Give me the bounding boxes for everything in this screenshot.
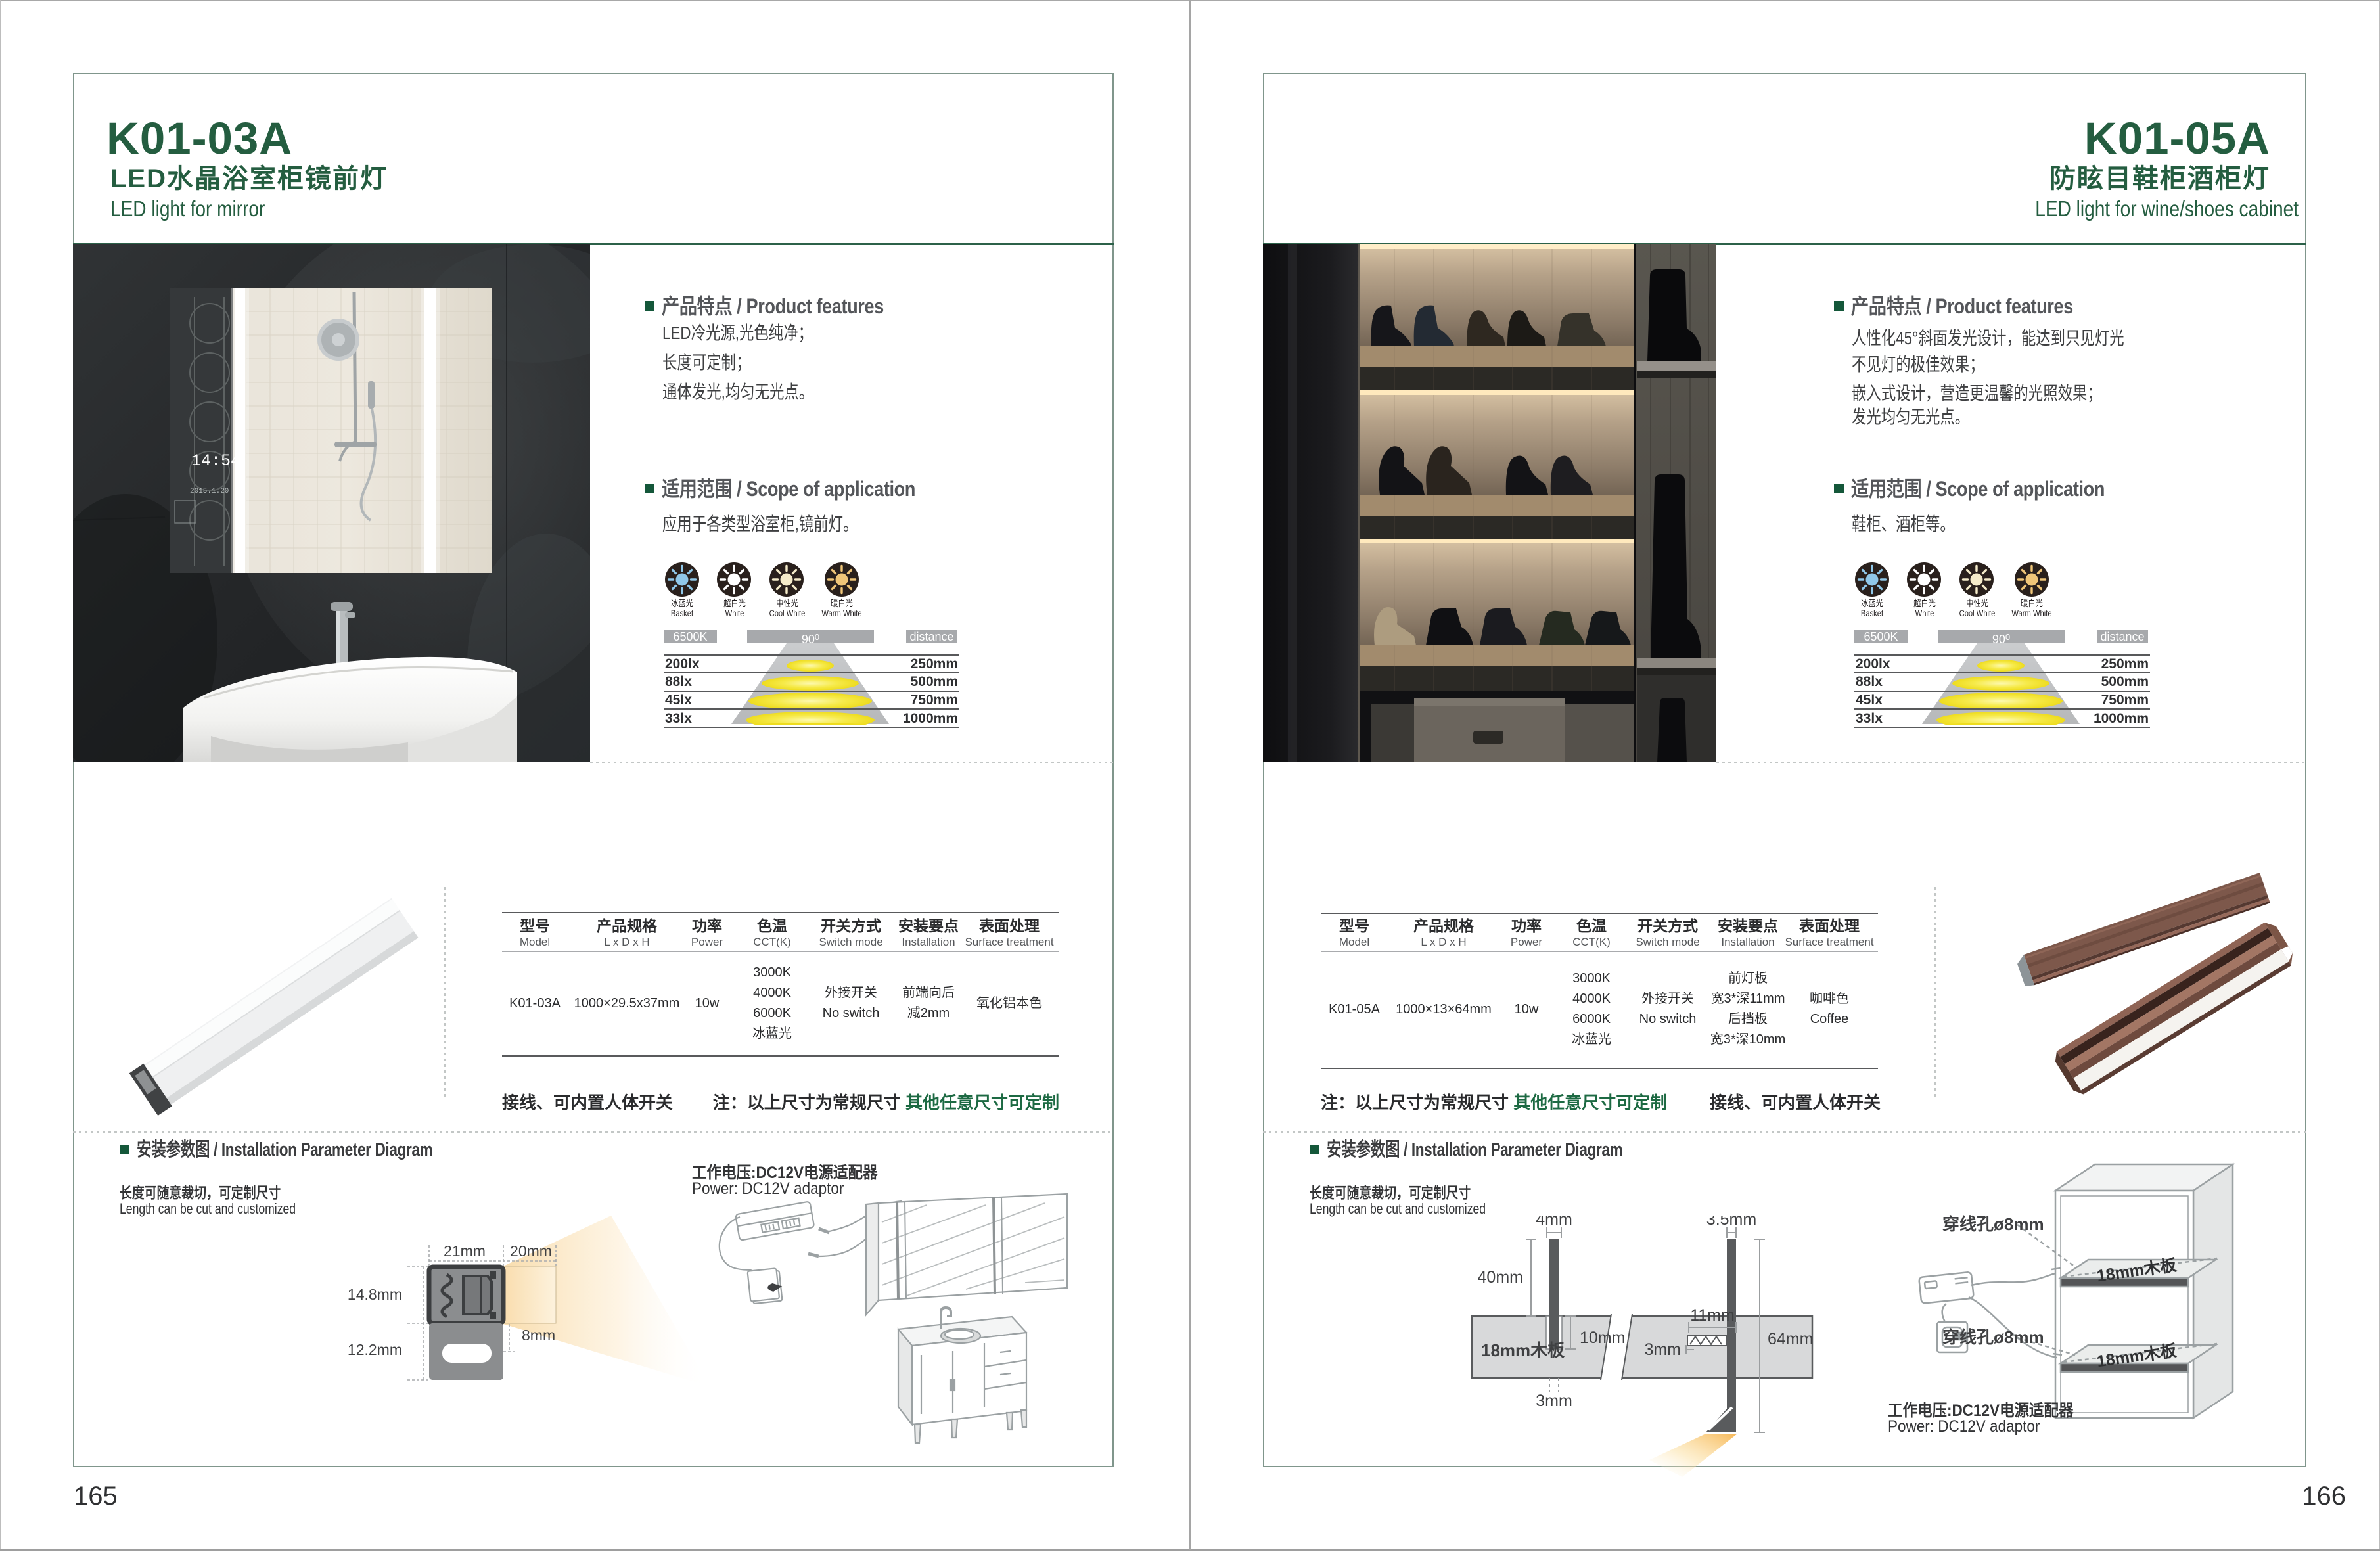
svg-text:3mm: 3mm <box>1644 1340 1681 1359</box>
svg-text:4mm: 4mm <box>1536 1216 1572 1229</box>
svg-text:40mm: 40mm <box>1478 1268 1523 1287</box>
svg-text:8mm: 8mm <box>522 1327 555 1344</box>
svg-text:3.5mm: 3.5mm <box>1706 1216 1756 1229</box>
svg-text:18mm木板: 18mm木板 <box>1481 1340 1565 1360</box>
svg-text:12.2mm: 12.2mm <box>348 1341 402 1358</box>
svg-text:穿线孔ø8mm: 穿线孔ø8mm <box>1942 1214 2044 1234</box>
svg-text:11mm: 11mm <box>1690 1306 1735 1325</box>
svg-text:64mm: 64mm <box>1768 1330 1813 1348</box>
svg-text:14.8mm: 14.8mm <box>348 1286 402 1303</box>
svg-text:3mm: 3mm <box>1536 1392 1572 1410</box>
svg-text:2015.1.20: 2015.1.20 <box>190 488 229 495</box>
svg-text:20mm: 20mm <box>510 1243 552 1260</box>
svg-text:21mm: 21mm <box>444 1243 486 1260</box>
svg-text:10mm: 10mm <box>1580 1329 1625 1347</box>
svg-text:穿线孔ø8mm: 穿线孔ø8mm <box>1942 1327 2044 1347</box>
